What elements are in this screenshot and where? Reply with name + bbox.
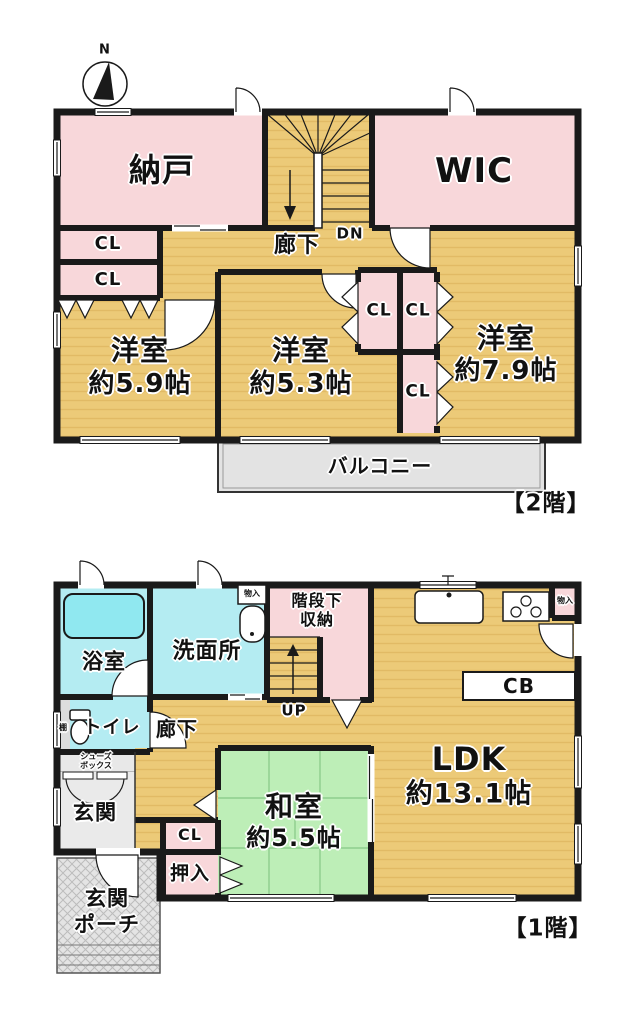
label-under-stairs-1: 階段下 <box>291 593 342 609</box>
label-stairs-up: UP <box>281 704 306 719</box>
label-corridor-1f: 廊下 <box>156 719 198 739</box>
label-closet-b: CL <box>405 303 430 320</box>
label-ldk: LDK <box>432 743 507 775</box>
label-closet-2f-2: CL <box>95 271 122 289</box>
floorplan-page: N 納戸 WIC 廊下 DN CL CL 洋室 約5.9帖 洋室 約5.3帖 洋… <box>0 0 635 1024</box>
compass-north-label: N <box>99 44 111 57</box>
label-western-room-53: 洋室 <box>272 337 330 365</box>
label-western-room-59: 洋室 <box>111 337 169 365</box>
label-oshiire: 押入 <box>170 865 210 884</box>
label-size-55: 約5.5帖 <box>246 826 342 850</box>
label-cupboard: CB <box>503 676 535 696</box>
compass-icon <box>83 62 127 106</box>
label-closet-a: CL <box>366 303 391 320</box>
wash-basin <box>240 606 265 642</box>
label-storage-room: 納戸 <box>129 154 195 186</box>
label-size-79: 約7.9帖 <box>454 358 557 384</box>
label-size-59: 約5.9帖 <box>88 371 191 397</box>
label-shoes-box-1: シューズ <box>80 753 112 761</box>
label-under-stairs-2: 収納 <box>300 612 334 628</box>
label-wic: WIC <box>435 154 513 188</box>
label-porch-1: 玄関 <box>85 889 129 910</box>
label-shelf: 棚 <box>59 724 67 732</box>
bathtub <box>64 594 144 638</box>
label-storage-ldk: 物入 <box>557 597 573 605</box>
label-japanese-room: 和室 <box>265 793 323 821</box>
label-stairs-down: DN <box>336 227 363 242</box>
caption-floor1: 【1階】 <box>503 918 592 941</box>
label-balcony: バルコニー <box>328 456 433 476</box>
label-size-53: 約5.3帖 <box>249 371 352 397</box>
label-entrance: 玄関 <box>73 803 117 824</box>
label-closet-2f-1: CL <box>95 235 122 253</box>
label-storage-washroom: 物入 <box>244 590 260 598</box>
label-size-131: 約13.1帖 <box>406 781 533 808</box>
label-closet-c: CL <box>405 384 430 401</box>
label-toilet: トイレ <box>84 719 141 737</box>
label-corridor-2f: 廊下 <box>274 235 320 257</box>
label-bath: 浴室 <box>82 652 126 673</box>
label-porch-2: ポーチ <box>74 915 140 936</box>
label-western-room-79: 洋室 <box>477 325 535 353</box>
label-shoes-box-2: ボックス <box>80 762 112 770</box>
caption-floor2: 【2階】 <box>501 493 590 516</box>
label-closet-1f: CL <box>178 827 202 843</box>
label-washroom: 洗面所 <box>172 641 241 663</box>
